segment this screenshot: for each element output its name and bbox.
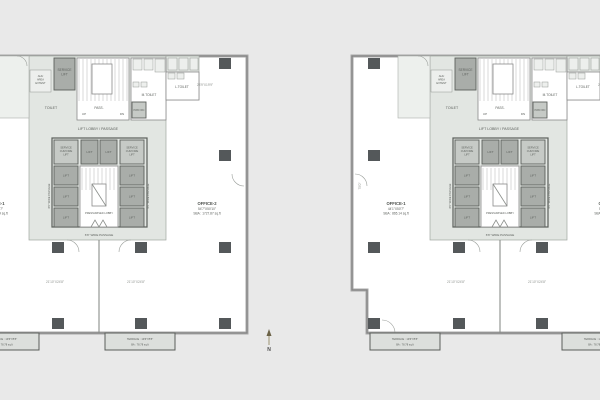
terrace-box-1: TERRACE : 19'6"X5'5" BA : 78.78 sq.ft: [370, 333, 440, 350]
lift-top-2-label: LIFT: [506, 150, 512, 154]
lift-right-3-label: LIFT: [530, 216, 536, 220]
sfl-left-l2: CUM FIRE: [60, 149, 73, 153]
terrace-box-2: TERRACE : 19'6"X5'5" BA : 78.78 sq.ft: [562, 333, 600, 350]
terrace-1-line1: TERRACE : 19'6"X5'5": [0, 337, 17, 341]
terrace-2-line2: BA : 78.78 sq.ft: [588, 343, 600, 347]
terrace-1-line2: BA : 78.78 sq.ft: [0, 343, 13, 347]
ahu-label-1: AHU: [38, 74, 44, 78]
lift-left-3-label: LIFT: [63, 216, 69, 220]
l-toilet: L.TOILET: [567, 58, 600, 100]
l-toilet: L.TOILET: [166, 58, 199, 100]
office-1-area: SBA : 865.14 sq.ft: [0, 212, 8, 216]
sfl-right-l2: CUM FIRE: [527, 149, 540, 153]
drawing-canvas: UP DN PASS. SERVICE LIFT AHU AREA EXTENT…: [0, 0, 600, 400]
stair-core: PRESSURISED LOBBY: [80, 166, 118, 227]
lift-lobby-label: LIFT LOBBY / PASSAGE: [479, 127, 520, 131]
service-lift-label-2: LIFT: [462, 73, 469, 77]
wide-passage-label: 6'6" WIDE PASSAGE: [85, 233, 114, 237]
sfl-right-l1: SERVICE: [126, 146, 138, 150]
office-1-area: SBA : 865.14 sq.ft: [383, 212, 409, 216]
terrace-2-line1: TERRACE : 19'6"X5'5": [584, 337, 600, 341]
terrace-2-line2: BA : 78.78 sq.ft: [131, 343, 149, 347]
sfl-left-l3: LIFT: [464, 153, 470, 157]
floor-plan-left: UP DN PASS. SERVICE LIFT AHU AREA EXTENT…: [0, 56, 247, 350]
side-passage-right-label: 6'0" WIDE PASSAGE: [547, 183, 551, 208]
lift-right-2-label: LIFT: [530, 195, 536, 199]
service-lift-label-1: SERVICE: [58, 68, 72, 72]
office-2-area: SBA : 1727.87 sq.ft: [193, 212, 220, 216]
lift-top-1-label: LIFT: [86, 150, 92, 154]
lift-right-1-label: LIFT: [530, 174, 536, 178]
sfl-right-l3: LIFT: [530, 153, 536, 157]
lift-left-2-label: LIFT: [63, 195, 69, 199]
wide-passage-label: 6'6" WIDE PASSAGE: [486, 233, 515, 237]
corner-dimension: 23'9"X19'9": [197, 83, 213, 87]
ahu-room: AHU AREA EXTENT: [431, 70, 452, 92]
service-lift: SERVICE LIFT: [54, 58, 75, 90]
m-toilet-label: M.TOILET: [142, 93, 157, 97]
room-dim-right: 21'10"X24'8": [127, 280, 145, 284]
stair-dn-label: DN: [120, 112, 124, 116]
toilet-label: TOILET: [446, 106, 459, 110]
service-lift-label-1: SERVICE: [459, 68, 473, 72]
sfl-right-l1: SERVICE: [527, 146, 539, 150]
floor-plan-right: UP DN PASS. SERVICE LIFT AHU AREA EXTENT…: [352, 56, 600, 350]
pwd-wc-label: PWD WC: [133, 108, 144, 112]
service-lift-label-2: LIFT: [61, 73, 68, 77]
north-label: N: [267, 347, 271, 353]
stair-dn-label: DN: [521, 112, 525, 116]
terrace-box-2: TERRACE : 19'6"X5'5" BA : 78.78 sq.ft: [105, 333, 175, 350]
stair-pass-label: PASS.: [94, 106, 103, 110]
lift-lobby-label: LIFT LOBBY / PASSAGE: [78, 127, 119, 131]
lift-left-3-label: LIFT: [464, 216, 470, 220]
lift-left-1-label: LIFT: [63, 174, 69, 178]
lift-top-2-label: LIFT: [105, 150, 111, 154]
office-1-title: OFFICE-1: [386, 201, 406, 206]
sfl-left-l2: CUM FIRE: [461, 149, 474, 153]
floor-plan-sheet: UP DN PASS. SERVICE LIFT AHU AREA EXTENT…: [0, 0, 600, 400]
ahu-label-2: AREA: [438, 78, 445, 82]
l-toilet-label: L.TOILET: [175, 85, 189, 89]
sfl-left-l1: SERVICE: [461, 146, 473, 150]
office-1-dims: 44'1"X50'7": [388, 207, 404, 211]
m-toilet: M.TOILET PWD WC: [131, 58, 166, 120]
l-toilet-label: L.TOILET: [576, 85, 590, 89]
stair-core: PRESSURISED LOBBY: [481, 166, 519, 227]
service-side-room: [0, 56, 29, 118]
room-dim-left: 21'10"X24'8": [46, 280, 64, 284]
terrace-box-1: TERRACE : 19'6"X5'5" BA : 78.78 sq.ft: [0, 333, 39, 350]
sfl-right-l2: CUM FIRE: [126, 149, 139, 153]
m-toilet-label: M.TOILET: [543, 93, 558, 97]
service-lift: SERVICE LIFT: [455, 58, 476, 90]
side-dimension: 75'0": [358, 182, 362, 189]
stair-main: UP DN PASS.: [77, 58, 129, 120]
side-passage-left-label: 6'0" WIDE PASSAGE: [47, 183, 51, 208]
office-1-title: OFFICE-1: [0, 201, 5, 206]
stair-pass-label: PASS.: [495, 106, 504, 110]
lift-right-1-label: LIFT: [129, 174, 135, 178]
office-2-dims: 54'7"X50'10": [198, 207, 216, 211]
sfl-right-l3: LIFT: [129, 153, 135, 157]
ahu-label-1: AHU: [439, 74, 445, 78]
room-dim-left: 21'10"X24'8": [447, 280, 465, 284]
office-1-dims: 44'1"X50'7": [0, 207, 3, 211]
ahu-label-3: EXTENT: [436, 81, 447, 85]
lift-left-2-label: LIFT: [464, 195, 470, 199]
lift-top-1-label: LIFT: [487, 150, 493, 154]
pressurised-lobby-label: PRESSURISED LOBBY: [85, 211, 113, 215]
toilet-label: TOILET: [45, 106, 58, 110]
service-side-room: [398, 56, 430, 118]
sfl-left-l1: SERVICE: [60, 146, 72, 150]
side-passage-left-label: 6'0" WIDE PASSAGE: [448, 183, 452, 208]
lift-left-1-label: LIFT: [464, 174, 470, 178]
office-2-area: SBA : 1727.87 sq.ft: [594, 212, 600, 216]
m-toilet: M.TOILET PWD WC: [532, 58, 567, 120]
office-2-title: OFFICE-2: [197, 201, 217, 206]
stair-main: UP DN PASS.: [478, 58, 530, 120]
pwd-wc-label: PWD WC: [534, 108, 545, 112]
sfl-left-l3: LIFT: [63, 153, 69, 157]
room-dim-right: 21'10"X24'8": [528, 280, 546, 284]
lift-right-2-label: LIFT: [129, 195, 135, 199]
ahu-label-2: AREA: [37, 78, 44, 82]
pressurised-lobby-label: PRESSURISED LOBBY: [486, 211, 514, 215]
lift-right-3-label: LIFT: [129, 216, 135, 220]
terrace-1-line2: BA : 78.78 sq.ft: [396, 343, 414, 347]
stair-up-label: UP: [483, 112, 487, 116]
ahu-room: AHU AREA EXTENT: [30, 70, 51, 92]
side-passage-right-label: 6'0" WIDE PASSAGE: [146, 183, 150, 208]
terrace-2-line1: TERRACE : 19'6"X5'5": [127, 337, 153, 341]
ahu-label-3: EXTENT: [35, 81, 46, 85]
terrace-1-line1: TERRACE : 19'6"X5'5": [392, 337, 418, 341]
stair-up-label: UP: [82, 112, 86, 116]
